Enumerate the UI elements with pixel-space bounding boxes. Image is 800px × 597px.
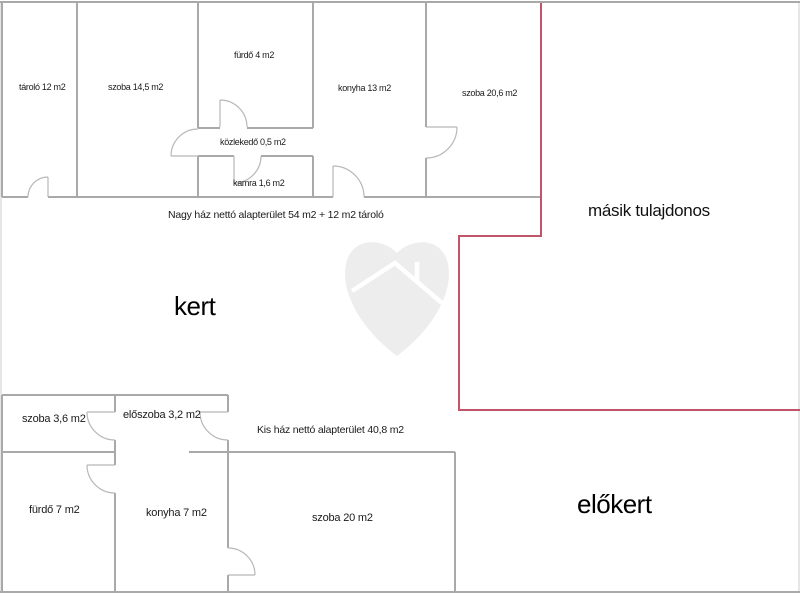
room-label-konyha-13: konyha 13 m2: [338, 84, 391, 93]
door-arc-furdo-nagy: [220, 100, 247, 127]
door-arc-szoba206: [426, 127, 457, 158]
room-label-kozlekedo: közlekedő 0,5 m2: [220, 138, 286, 147]
room-label-szoba-14-5: szoba 14,5 m2: [108, 83, 163, 92]
big-house-summary: Nagy ház nettó alapterület 54 m2 + 12 m2…: [168, 210, 384, 221]
door-arc-tarolo: [28, 177, 48, 197]
door-arc-eloszoba: [200, 412, 228, 440]
area-label-front-garden: előkert: [577, 491, 652, 517]
area-label-garden: kert: [174, 293, 215, 319]
room-label-eloszoba: előszoba 3,2 m2: [123, 410, 201, 421]
area-label-other-owner: másik tulajdonos: [588, 202, 710, 219]
room-label-szoba-20: szoba 20 m2: [312, 513, 373, 524]
room-label-szoba-20-6: szoba 20,6 m2: [462, 89, 517, 98]
room-label-kamra: kamra 1,6 m2: [233, 179, 284, 188]
room-label-furdo-4: fürdő 4 m2: [234, 51, 274, 60]
room-label-furdo-7: fürdő 7 m2: [29, 505, 80, 516]
door-arc-konyha-nagy: [333, 166, 364, 197]
door-arc-szoba36: [87, 412, 115, 440]
door-arc-szoba20: [228, 548, 255, 575]
room-label-szoba-3-6: szoba 3,6 m2: [22, 414, 86, 425]
door-arc-szoba145: [171, 129, 198, 156]
small-house-summary: Kis ház nettó alapterület 40,8 m2: [257, 425, 404, 436]
floor-plan: tároló 12 m2 szoba 14,5 m2 fürdő 4 m2 ko…: [0, 0, 800, 597]
room-label-tarolo: tároló 12 m2: [19, 83, 65, 92]
room-label-konyha-7: konyha 7 m2: [146, 508, 207, 519]
door-arc-furdo-kis: [87, 465, 115, 493]
watermark-pin-icon: [345, 242, 449, 356]
